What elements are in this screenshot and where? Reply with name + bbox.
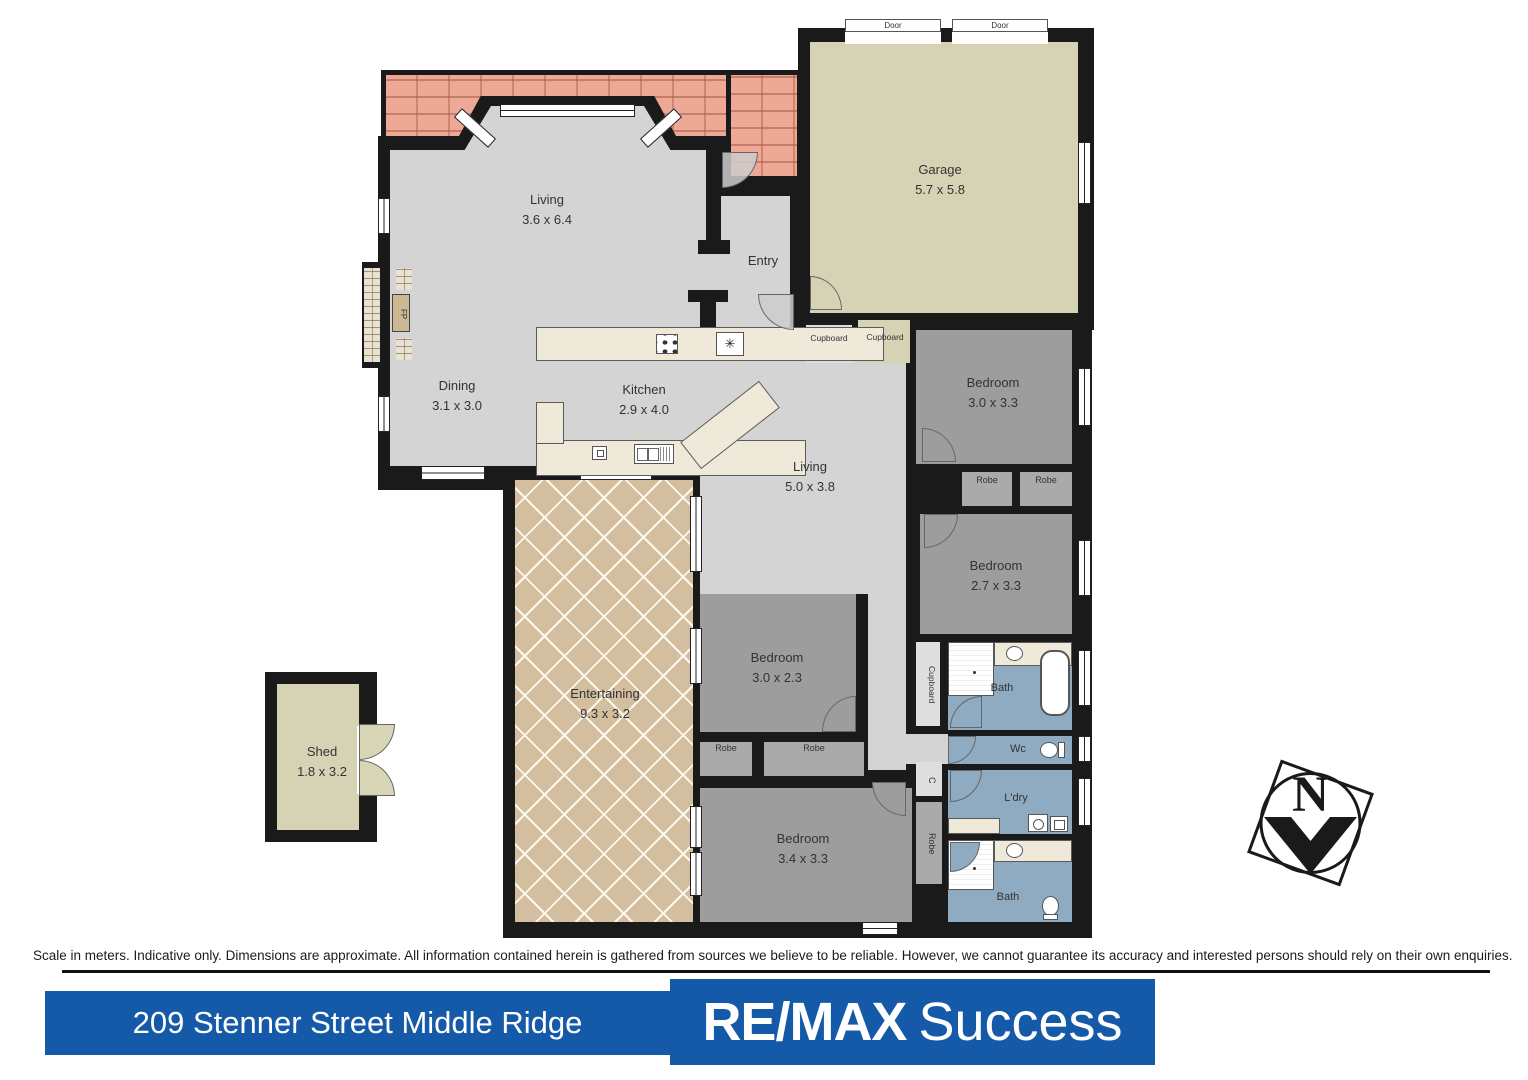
- label-bed1: Bedroom3.0 x 3.3: [933, 373, 1053, 412]
- washer-icon: [1028, 814, 1048, 832]
- window-bed4-left-2: [690, 852, 702, 896]
- garage-door-label-1: Door: [845, 19, 941, 32]
- cupboard-label: Cupboard: [927, 666, 937, 703]
- window-bed2-right: [1078, 540, 1091, 596]
- label-dining: Dining3.1 x 3.0: [397, 376, 517, 415]
- kitchen-island-return: [536, 402, 564, 444]
- room-name: Bath: [962, 680, 1042, 697]
- room-name: Bedroom: [936, 556, 1056, 576]
- room-dims: 3.6 x 6.4: [487, 210, 607, 230]
- label-c: C: [921, 770, 937, 790]
- floor-plan: Door Door FP ✳: [0, 0, 1528, 1080]
- window-wc-right: [1078, 736, 1091, 762]
- room-name: Bath: [968, 889, 1048, 906]
- window-dining-left: [378, 396, 390, 432]
- fp-label: FP: [399, 309, 408, 319]
- room-dims: 3.4 x 3.3: [743, 849, 863, 869]
- room-name: Dining: [397, 376, 517, 396]
- room-dims: 9.3 x 3.2: [545, 704, 665, 724]
- basin-bath1: [1006, 646, 1023, 661]
- label-bed4: Bedroom3.4 x 3.3: [743, 829, 863, 868]
- hallway-wc: [880, 734, 948, 764]
- label-garage: Garage5.7 x 5.8: [880, 160, 1000, 199]
- room-name: Garage: [880, 160, 1000, 180]
- fireplace-label: FP: [394, 300, 408, 328]
- room-dims: 3.0 x 2.3: [717, 668, 837, 688]
- robe-label: Robe: [1035, 475, 1057, 485]
- cupboard-label: Cupboard: [810, 333, 847, 343]
- label-robe1: Robe: [962, 475, 1012, 485]
- room-name: Wc: [996, 741, 1040, 758]
- window-entertaining-2: [690, 628, 702, 684]
- room-name: Bedroom: [717, 648, 837, 668]
- address-bar: 209 Stenner Street Middle Ridge: [45, 991, 670, 1055]
- robe-label: Robe: [715, 743, 737, 753]
- window-garage-right: [1078, 142, 1091, 204]
- north-arrowhead: [1264, 817, 1357, 874]
- label-cupboard-strip: Cupboard: [919, 648, 937, 722]
- brand-name: RE/MAX: [702, 991, 906, 1053]
- toilet-wc-bowl: [1040, 742, 1058, 758]
- slider-entertaining-1: [690, 496, 702, 572]
- room-dims: 1.8 x 3.2: [262, 762, 382, 782]
- washer-drum: [1033, 819, 1044, 830]
- room-name: Bedroom: [933, 373, 1053, 393]
- remax-logo: RE/MAX Success: [670, 979, 1155, 1065]
- room-name: Bedroom: [743, 829, 863, 849]
- chimney-outer: [364, 268, 380, 362]
- dishwasher-dot: [597, 450, 604, 457]
- garage-door-gap-1: [845, 30, 941, 44]
- sink-bowl-2: [648, 448, 659, 461]
- label-ldry: L'dry: [976, 790, 1056, 807]
- label-shed: Shed1.8 x 3.2: [262, 742, 382, 781]
- room-dims: 2.9 x 4.0: [584, 400, 704, 420]
- label-living-top: Living3.6 x 6.4: [487, 190, 607, 229]
- door-label: Door: [991, 21, 1008, 30]
- garage-door-gap-2: [952, 30, 1048, 44]
- window-ldry-right: [1078, 778, 1091, 826]
- room-dims: 5.7 x 5.8: [880, 180, 1000, 200]
- label-bath1: Bath: [962, 680, 1042, 697]
- label-cupboard-garage: Cupboard: [856, 332, 914, 342]
- label-kitchen: Kitchen2.9 x 4.0: [584, 380, 704, 419]
- pantry-icon: ✳: [716, 332, 744, 356]
- wall-stub-kitchen-t: [688, 290, 728, 302]
- c-label: C: [927, 777, 937, 784]
- door-label: Door: [884, 21, 901, 30]
- sink-drainer: [660, 447, 672, 461]
- label-bath2: Bath: [968, 889, 1048, 906]
- room-name: Entry: [723, 251, 803, 271]
- sink-bowl-1: [637, 448, 648, 461]
- window-living-left: [378, 198, 390, 234]
- address-text: 209 Stenner Street Middle Ridge: [133, 1005, 583, 1041]
- label-living-mid: Living5.0 x 3.8: [750, 457, 870, 496]
- label-bed2: Bedroom2.7 x 3.3: [936, 556, 1056, 595]
- label-cupboard-entry: Cupboard: [800, 333, 858, 343]
- brand-suffix: Success: [918, 991, 1122, 1053]
- window-bath1-right: [1078, 650, 1091, 706]
- disclaimer-text: Scale in meters. Indicative only. Dimens…: [33, 948, 1513, 963]
- label-robe3: Robe: [700, 743, 752, 753]
- ldry-bench: [948, 818, 1000, 834]
- north-letter: N: [1292, 767, 1329, 823]
- dishwasher-icon: [592, 446, 607, 460]
- sink-icon: [634, 444, 674, 464]
- room-name: Shed: [262, 742, 382, 762]
- garage-door-label-2: Door: [952, 19, 1048, 32]
- basin-bath2: [1006, 843, 1023, 858]
- room-dims: 5.0 x 3.8: [750, 477, 870, 497]
- label-entry: Entry: [723, 251, 803, 271]
- tub-inner: [1054, 820, 1065, 830]
- wall-stub-living-entry: [706, 150, 721, 250]
- label-robe4: Robe: [764, 743, 864, 753]
- stove-icon: [656, 334, 678, 354]
- room-name: L'dry: [976, 790, 1056, 807]
- label-bed3: Bedroom3.0 x 2.3: [717, 648, 837, 687]
- cupboard-label: Cupboard: [866, 332, 903, 342]
- tub-icon: [1050, 816, 1068, 832]
- bathtub-icon: [1040, 650, 1070, 716]
- window-bed1-right: [1078, 368, 1091, 426]
- label-robe2: Robe: [1020, 475, 1072, 485]
- footer-divider: [62, 970, 1490, 973]
- window-bed4-bottom: [862, 922, 898, 935]
- shower-drain-2: [973, 867, 976, 870]
- shower-drain: [973, 671, 976, 674]
- room-name: Living: [487, 190, 607, 210]
- chimney-top: [396, 268, 412, 290]
- robe-label: Robe: [803, 743, 825, 753]
- window-dining-bottom: [421, 466, 485, 480]
- room-name: Kitchen: [584, 380, 704, 400]
- label-entertaining: Entertaining9.3 x 3.2: [545, 684, 665, 723]
- toilet-wc-tank: [1058, 742, 1065, 758]
- robe-label: Robe: [927, 833, 937, 855]
- robe-label: Robe: [976, 475, 998, 485]
- room-living-top: [390, 150, 720, 330]
- room-name: Living: [750, 457, 870, 477]
- chimney-bottom: [396, 338, 412, 360]
- room-name: Entertaining: [545, 684, 665, 704]
- label-wc: Wc: [996, 741, 1040, 758]
- window-bed4-left-1: [690, 806, 702, 848]
- label-robe5: Robe: [921, 818, 937, 870]
- bay-window-top: [500, 104, 635, 117]
- north-arrow: N: [1228, 748, 1393, 898]
- toilet-bath2-tank: [1043, 914, 1058, 920]
- room-dims: 2.7 x 3.3: [936, 576, 1056, 596]
- room-dims: 3.1 x 3.0: [397, 396, 517, 416]
- room-dims: 3.0 x 3.3: [933, 393, 1053, 413]
